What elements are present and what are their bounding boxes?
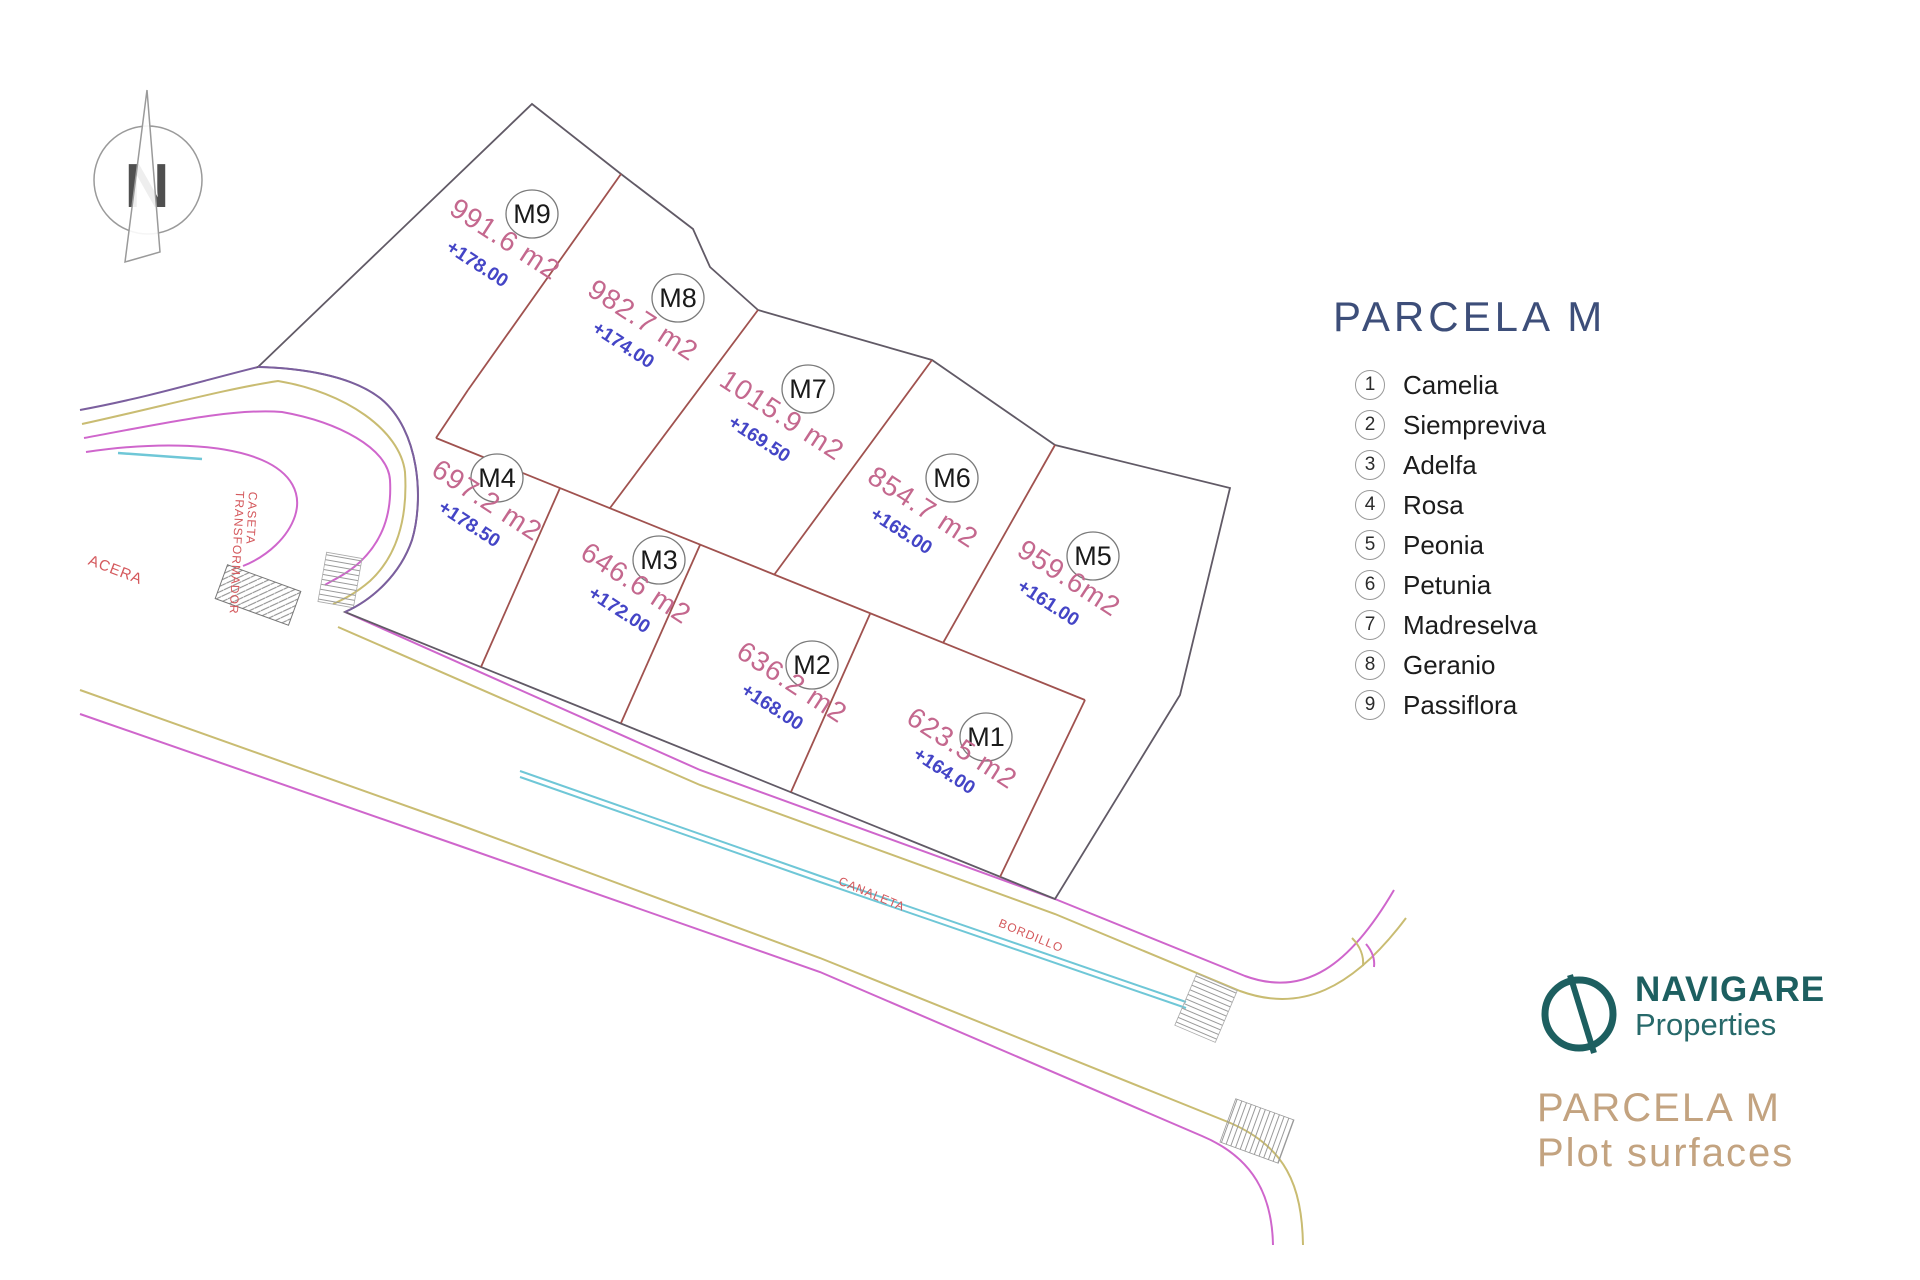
brand-subtitle-line1: PARCELA M [1537, 1086, 1825, 1131]
legend-item-name: Geranio [1403, 650, 1496, 681]
legend-number-badge: 6 [1355, 570, 1385, 600]
legend-item-name: Madreselva [1403, 610, 1537, 641]
water-line-cyan [118, 453, 202, 459]
brand-subtitle: PARCELA M Plot surfaces [1537, 1086, 1825, 1176]
legend-number-badge: 2 [1355, 410, 1385, 440]
navigare-logo-icon [1537, 972, 1621, 1056]
legend-item-rosa: 4 Rosa [1355, 485, 1606, 525]
legend-title: PARCELA M [1333, 293, 1606, 341]
legend-item-name: Petunia [1403, 570, 1491, 601]
road-loop-inner-magenta [86, 445, 297, 566]
legend: PARCELA M 1 Camelia 2 Siempreviva 3 Adel… [1333, 293, 1606, 725]
brand-subtitle-line2: Plot surfaces [1537, 1131, 1825, 1176]
legend-item-name: Siempreviva [1403, 410, 1546, 441]
legend-item-geranio: 8 Geranio [1355, 645, 1606, 685]
road-crosswalk [1175, 974, 1237, 1043]
legend-item-petunia: 6 Petunia [1355, 565, 1606, 605]
parcel-boundary [258, 104, 1230, 899]
legend-item-name: Adelfa [1403, 450, 1477, 481]
loop-crosswalk [318, 552, 362, 607]
legend-item-adelfa: 3 Adelfa [1355, 445, 1606, 485]
legend-item-name: Camelia [1403, 370, 1498, 401]
legend-item-name: Passiflora [1403, 690, 1517, 721]
legend-item-camelia: 1 Camelia [1355, 365, 1606, 405]
legend-number-badge: 1 [1355, 370, 1385, 400]
legend-item-passiflora: 9 Passiflora [1355, 685, 1606, 725]
plot-m9-id: M9 [513, 199, 551, 229]
plot-m6-id: M6 [933, 463, 971, 493]
legend-number-badge: 8 [1355, 650, 1385, 680]
brand-text: NAVIGARE Properties [1635, 972, 1825, 1043]
legend-items: 1 Camelia 2 Siempreviva 3 Adelfa 4 Rosa … [1355, 365, 1606, 725]
legend-number-badge: 9 [1355, 690, 1385, 720]
brand-name: NAVIGARE [1635, 972, 1825, 1007]
legend-item-madreselva: 7 Madreselva [1355, 605, 1606, 645]
legend-number-badge: 7 [1355, 610, 1385, 640]
branding: NAVIGARE Properties PARCELA M Plot surfa… [1537, 972, 1825, 1176]
plot-m7-id: M7 [789, 374, 827, 404]
north-compass: N [94, 90, 202, 262]
legend-number-badge: 5 [1355, 530, 1385, 560]
site-plan-page: N M9 991.6 m2 +178.00 M8 982.7 m2 +174.0… [0, 0, 1920, 1280]
legend-item-peonia: 5 Peonia [1355, 525, 1606, 565]
legend-item-siempreviva: 2 Siempreviva [1355, 405, 1606, 445]
legend-item-name: Peonia [1403, 530, 1484, 561]
legend-number-badge: 3 [1355, 450, 1385, 480]
legend-number-badge: 4 [1355, 490, 1385, 520]
brand-row: NAVIGARE Properties [1537, 972, 1825, 1056]
legend-item-name: Rosa [1403, 490, 1464, 521]
road-dash-magenta [1366, 944, 1374, 967]
plot-m8-id: M8 [659, 283, 697, 313]
brand-name-line2: Properties [1635, 1007, 1825, 1043]
